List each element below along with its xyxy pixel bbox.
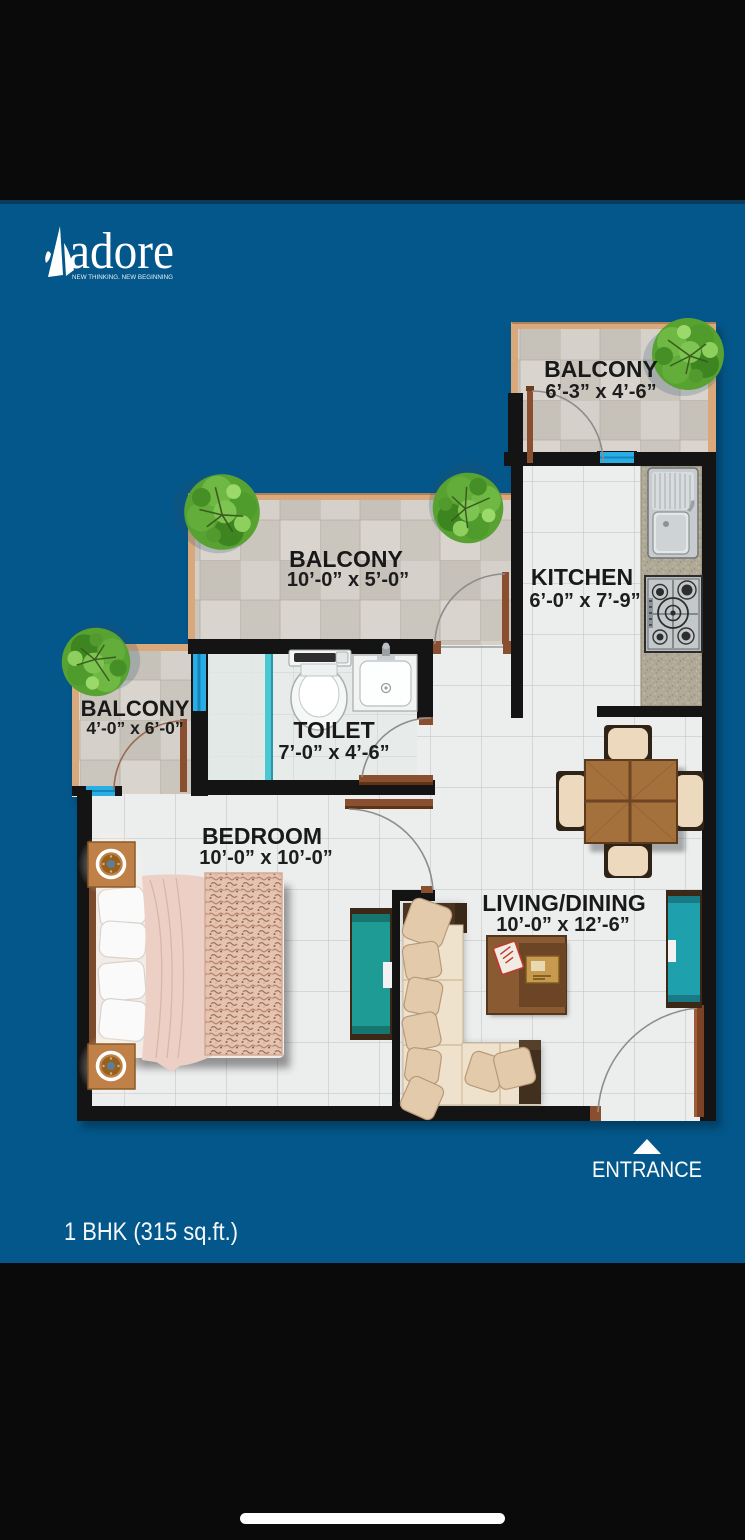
svg-text:adore: adore	[69, 223, 174, 280]
svg-text:6’-0” x 7’-9”: 6’-0” x 7’-9”	[529, 590, 640, 612]
svg-text:10’-0” x 5’-0”: 10’-0” x 5’-0”	[287, 569, 409, 591]
svg-text:4’-0” x 6’-0”: 4’-0” x 6’-0”	[86, 718, 183, 738]
svg-text:10’-0” x 10’-0”: 10’-0” x 10’-0”	[199, 847, 332, 869]
svg-text:1 BHK (315 sq.ft.): 1 BHK (315 sq.ft.)	[64, 1218, 238, 1246]
svg-text:10’-0” x 12’-6”: 10’-0” x 12’-6”	[496, 914, 629, 936]
svg-text:ENTRANCE: ENTRANCE	[592, 1157, 702, 1182]
svg-text:BEDROOM: BEDROOM	[202, 823, 322, 849]
svg-text:TOILET: TOILET	[293, 717, 374, 743]
svg-text:BALCONY: BALCONY	[544, 356, 658, 382]
svg-text:LIVING/DINING: LIVING/DINING	[482, 890, 646, 916]
svg-text:NEW THINKING. NEW BEGINNING: NEW THINKING. NEW BEGINNING	[72, 274, 173, 281]
svg-text:7’-0” x 4’-6”: 7’-0” x 4’-6”	[278, 742, 389, 764]
svg-text:KITCHEN: KITCHEN	[531, 564, 633, 590]
svg-text:6’-3” x 4’-6”: 6’-3” x 4’-6”	[545, 381, 656, 403]
